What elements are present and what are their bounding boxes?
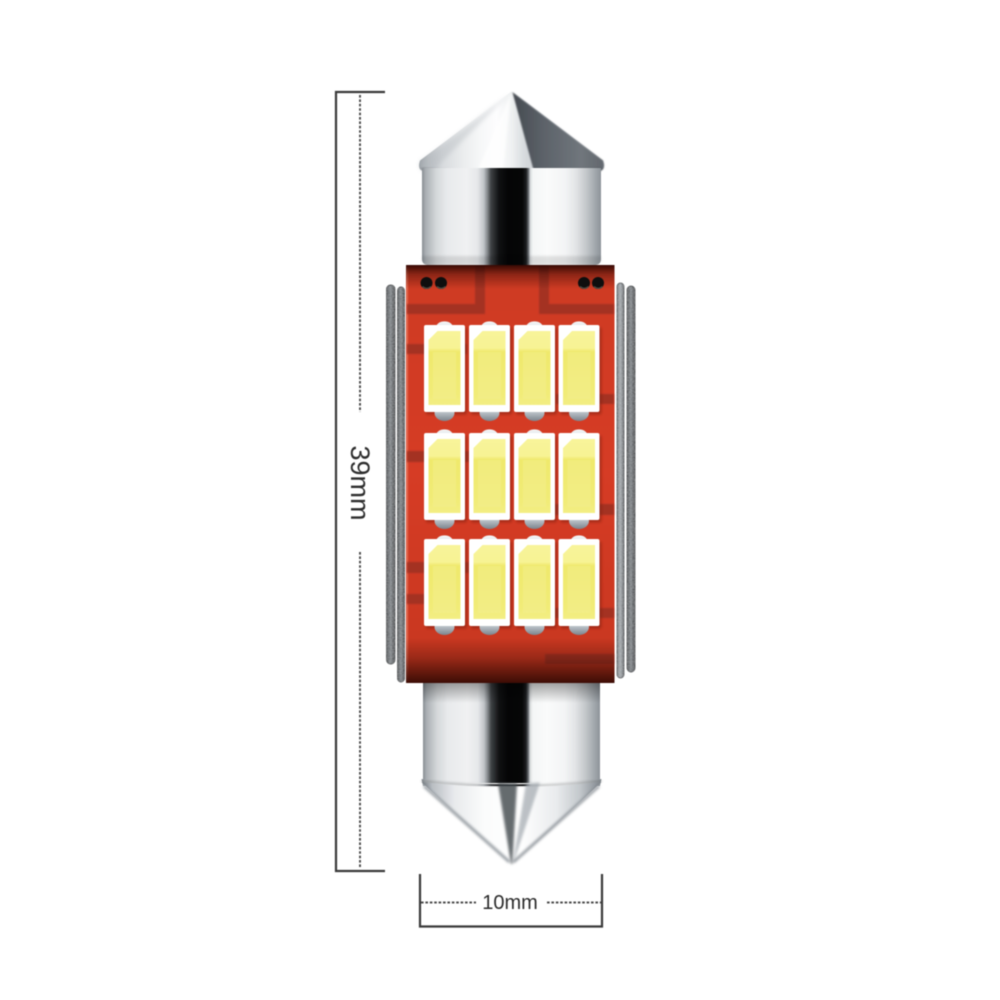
svg-text:39mm: 39mm (345, 445, 375, 520)
svg-text:10mm: 10mm (482, 892, 538, 914)
